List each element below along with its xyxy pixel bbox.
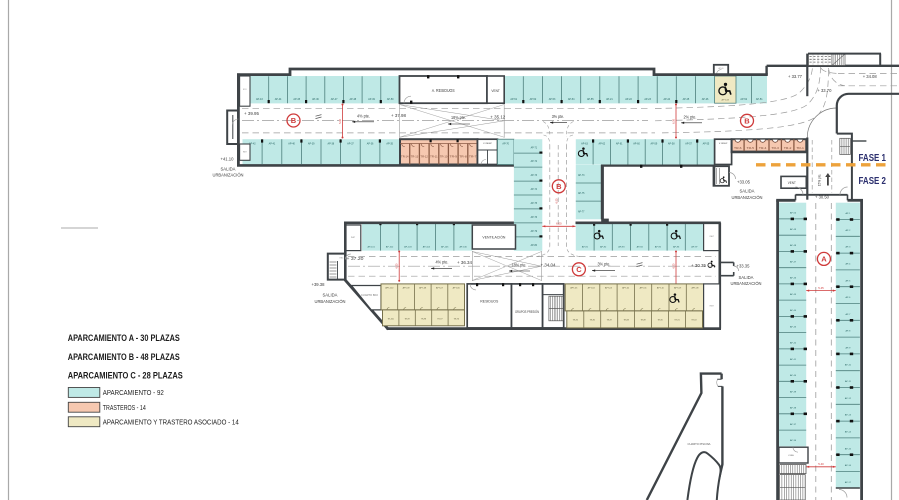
svg-text:AP-37: AP-37 bbox=[790, 423, 797, 426]
svg-text:TR-11: TR-11 bbox=[430, 156, 438, 159]
svg-text:AP-3: AP-3 bbox=[845, 246, 851, 249]
svg-text:3% pte.: 3% pte. bbox=[598, 262, 611, 267]
svg-text:AP-36: AP-36 bbox=[790, 439, 797, 442]
svg-text:TR-13: TR-13 bbox=[411, 156, 419, 159]
svg-text:+33.05: +33.05 bbox=[737, 180, 751, 185]
svg-text:AP-44: AP-44 bbox=[275, 98, 282, 101]
svg-text:AP-103: AP-103 bbox=[404, 246, 412, 249]
svg-text:4% pte.: 4% pte. bbox=[357, 114, 370, 119]
svg-text:TR-92: TR-92 bbox=[691, 320, 696, 322]
svg-text:V. INDEP: V. INDEP bbox=[719, 143, 728, 145]
svg-text:AP-73: AP-73 bbox=[531, 174, 538, 177]
svg-text:TR-9: TR-9 bbox=[450, 156, 458, 159]
svg-text:AP-104: AP-104 bbox=[423, 246, 431, 249]
svg-text:APARCAMIENTO A - 30 PLAZAS: APARCAMIENTO A - 30 PLAZAS bbox=[68, 333, 180, 343]
svg-text:TR-89: TR-89 bbox=[640, 320, 645, 322]
svg-text:AP-4: AP-4 bbox=[845, 263, 851, 266]
svg-text:TR-91: TR-91 bbox=[674, 320, 679, 322]
svg-text:+ 37.20: + 37.20 bbox=[347, 256, 364, 261]
svg-text:AP-73: AP-73 bbox=[578, 174, 585, 177]
svg-text:TRASTEROS - 14: TRASTEROS - 14 bbox=[103, 405, 146, 412]
svg-text:+ 37.98: + 37.98 bbox=[391, 113, 406, 118]
svg-text:TR-100: TR-100 bbox=[388, 318, 394, 320]
svg-text:AP-11: AP-11 bbox=[845, 380, 852, 383]
svg-text:C: C bbox=[576, 265, 582, 274]
svg-text:B: B bbox=[291, 116, 297, 125]
svg-text:APT-33: APT-33 bbox=[722, 99, 730, 102]
svg-text:URBANIZACIÓN: URBANIZACIÓN bbox=[315, 299, 346, 304]
svg-text:AP-60: AP-60 bbox=[633, 142, 640, 145]
svg-text:AP-52: AP-52 bbox=[530, 98, 537, 101]
svg-text:6.00: 6.00 bbox=[396, 263, 399, 268]
svg-text:AP-61: AP-61 bbox=[616, 142, 623, 145]
svg-text:AP-41: AP-41 bbox=[269, 142, 276, 145]
svg-text:APT-09: APT-09 bbox=[403, 287, 411, 290]
svg-text:AP-97: AP-97 bbox=[691, 246, 698, 249]
svg-text:TR-5: TR-5 bbox=[747, 147, 755, 150]
svg-text:AP-46: AP-46 bbox=[790, 277, 797, 280]
svg-text:AP-22: AP-22 bbox=[625, 98, 632, 101]
svg-text:URBANIZACIÓN: URBANIZACIÓN bbox=[732, 195, 763, 200]
svg-text:URBANIZACIÓN: URBANIZACIÓN bbox=[731, 281, 762, 286]
svg-text:APT-04: APT-04 bbox=[588, 287, 596, 290]
svg-text:AP-105: AP-105 bbox=[441, 246, 449, 249]
svg-text:+ 36.34: + 36.34 bbox=[457, 260, 472, 265]
svg-text:+33.35: +33.35 bbox=[737, 263, 751, 268]
svg-text:VENT: VENT bbox=[491, 89, 500, 93]
svg-text:SALIDA: SALIDA bbox=[739, 275, 754, 280]
svg-text:AP-16: AP-16 bbox=[845, 464, 852, 467]
svg-text:AP-77: AP-77 bbox=[578, 210, 585, 213]
svg-text:APARCAMIENTO - 92: APARCAMIENTO - 92 bbox=[103, 390, 164, 397]
svg-text:AP-7: AP-7 bbox=[845, 313, 851, 316]
svg-text:APT-03: APT-03 bbox=[605, 287, 613, 290]
svg-text:A: A bbox=[821, 255, 827, 264]
svg-text:AP-54: AP-54 bbox=[568, 98, 575, 101]
svg-text:AP-72: AP-72 bbox=[531, 160, 538, 163]
svg-text:AP-35: AP-35 bbox=[386, 142, 393, 145]
svg-text:AP-37: AP-37 bbox=[347, 142, 354, 145]
svg-text:TR-14: TR-14 bbox=[401, 156, 409, 159]
svg-text:APARCAMIENTO B - 48 PLAZAS: APARCAMIENTO B - 48 PLAZAS bbox=[68, 352, 180, 362]
svg-text:AP-47: AP-47 bbox=[331, 98, 338, 101]
svg-text:+ 34.04: + 34.04 bbox=[541, 262, 556, 267]
svg-text:APARCAMIENTO Y TRASTERO ASOCIA: APARCAMIENTO Y TRASTERO ASOCIADO - 14 bbox=[103, 420, 239, 427]
svg-text:AP-91: AP-91 bbox=[582, 246, 589, 249]
svg-text:AP-48: AP-48 bbox=[790, 244, 797, 247]
svg-text:VENTILACIÓN: VENTILACIÓN bbox=[482, 235, 505, 240]
svg-text:AP-36: AP-36 bbox=[367, 142, 374, 145]
svg-text:APT-10: APT-10 bbox=[657, 287, 665, 290]
svg-text:GRUPOS PRESIÓN: GRUPOS PRESIÓN bbox=[515, 309, 540, 314]
svg-text:AP-40: AP-40 bbox=[288, 142, 295, 145]
svg-text:AP-74: AP-74 bbox=[531, 188, 538, 191]
svg-text:AP-49: AP-49 bbox=[368, 98, 375, 101]
svg-text:AP-47: AP-47 bbox=[790, 260, 797, 263]
svg-text:5.40: 5.40 bbox=[818, 462, 824, 466]
svg-text:AP-58: AP-58 bbox=[668, 142, 675, 145]
svg-text:AP-24: AP-24 bbox=[663, 98, 670, 101]
svg-text:+ 39.95: + 39.95 bbox=[244, 111, 259, 116]
svg-text:2% pte.: 2% pte. bbox=[684, 115, 697, 120]
svg-text:AP-51: AP-51 bbox=[756, 98, 763, 101]
svg-text:6.00: 6.00 bbox=[555, 198, 558, 203]
svg-text:AP-52: AP-52 bbox=[740, 98, 747, 101]
svg-text:AP-38: AP-38 bbox=[327, 142, 334, 145]
svg-text:TR-86: TR-86 bbox=[590, 320, 595, 322]
svg-text:FASE 2: FASE 2 bbox=[859, 176, 887, 187]
svg-text:V.MAN: V.MAN bbox=[788, 454, 794, 457]
svg-text:SALIDA: SALIDA bbox=[221, 166, 236, 171]
svg-text:6.00: 6.00 bbox=[673, 119, 676, 124]
svg-text:APT-05: APT-05 bbox=[570, 287, 578, 290]
svg-text:TR-2: TR-2 bbox=[784, 147, 792, 150]
svg-text:APT-02: APT-02 bbox=[622, 287, 630, 290]
svg-text:+39.38: +39.38 bbox=[312, 282, 326, 287]
svg-text:AP-50: AP-50 bbox=[790, 212, 797, 215]
svg-text:AP-23: AP-23 bbox=[644, 98, 651, 101]
svg-text:TR-8: TR-8 bbox=[459, 156, 467, 159]
svg-text:AP-50: AP-50 bbox=[387, 98, 394, 101]
svg-text:APT-07: APT-07 bbox=[436, 287, 444, 290]
svg-text:SALIDA: SALIDA bbox=[323, 293, 338, 298]
svg-text:TR-12: TR-12 bbox=[420, 156, 428, 159]
svg-text:AP-38: AP-38 bbox=[790, 407, 797, 410]
svg-text:APT-01: APT-01 bbox=[640, 287, 648, 290]
svg-text:+41.10: +41.10 bbox=[221, 156, 235, 161]
svg-text:AP-46: AP-46 bbox=[312, 98, 319, 101]
svg-text:AP-12: AP-12 bbox=[845, 397, 852, 400]
svg-text:AP-8: AP-8 bbox=[845, 330, 851, 333]
svg-text:AP-43: AP-43 bbox=[256, 98, 263, 101]
svg-text:AP-14: AP-14 bbox=[845, 431, 852, 434]
svg-text:AP-17: AP-17 bbox=[845, 481, 852, 484]
svg-text:AP-15: AP-15 bbox=[845, 447, 852, 450]
svg-text:AP-55: AP-55 bbox=[703, 142, 710, 145]
svg-text:AP-42: AP-42 bbox=[790, 342, 797, 345]
svg-text:AP-101: AP-101 bbox=[368, 246, 376, 249]
svg-text:TR-1: TR-1 bbox=[796, 147, 804, 150]
svg-text:AP-21: AP-21 bbox=[606, 98, 613, 101]
svg-text:TR-88: TR-88 bbox=[624, 320, 629, 322]
svg-text:AP-49: AP-49 bbox=[790, 228, 797, 231]
svg-text:6.00: 6.00 bbox=[673, 263, 676, 268]
svg-text:V. INDEP: V. INDEP bbox=[483, 143, 492, 145]
svg-text:AP-106: AP-106 bbox=[459, 246, 467, 249]
svg-text:3% pte.: 3% pte. bbox=[552, 114, 565, 119]
svg-text:FASE 1: FASE 1 bbox=[859, 153, 887, 164]
svg-text:4% pte.: 4% pte. bbox=[436, 260, 449, 265]
svg-text:AP-9: AP-9 bbox=[845, 347, 851, 350]
svg-text:AP-41: AP-41 bbox=[790, 358, 797, 361]
svg-text:AP-1: AP-1 bbox=[845, 212, 851, 215]
svg-text:AP-43: AP-43 bbox=[790, 325, 797, 328]
svg-text:AP-2: AP-2 bbox=[845, 229, 851, 232]
svg-text:APT-09: APT-09 bbox=[674, 287, 682, 290]
svg-text:B: B bbox=[744, 116, 750, 125]
svg-text:AP-45: AP-45 bbox=[293, 98, 300, 101]
svg-text:+ 34.08: + 34.08 bbox=[863, 74, 878, 79]
svg-text:AP-76: AP-76 bbox=[531, 216, 538, 219]
svg-text:AP-79: AP-79 bbox=[531, 230, 538, 233]
svg-text:SALIDA: SALIDA bbox=[740, 189, 755, 194]
svg-text:AP-10: AP-10 bbox=[845, 363, 852, 366]
svg-text:AP-13: AP-13 bbox=[845, 414, 852, 417]
svg-text:APARCAMIENTO C - 28 PLAZAS: APARCAMIENTO C - 28 PLAZAS bbox=[68, 371, 183, 381]
svg-text:5.45: 5.45 bbox=[818, 286, 824, 290]
svg-text:URBANIZACIÓN: URBANIZACIÓN bbox=[213, 173, 244, 178]
svg-text:AP-63: AP-63 bbox=[581, 142, 588, 145]
svg-text:TR-85: TR-85 bbox=[573, 320, 578, 322]
svg-text:TR-98: TR-98 bbox=[421, 318, 426, 320]
svg-text:AP-70: AP-70 bbox=[502, 142, 509, 145]
svg-text:+ 33.70: + 33.70 bbox=[817, 88, 832, 93]
svg-text:AP-55: AP-55 bbox=[587, 98, 594, 101]
svg-text:TR-97: TR-97 bbox=[437, 318, 442, 320]
svg-text:AP-39: AP-39 bbox=[790, 390, 797, 393]
svg-text:AP-80: AP-80 bbox=[531, 244, 538, 247]
svg-text:AP-44: AP-44 bbox=[790, 309, 797, 312]
svg-text:TR-90: TR-90 bbox=[657, 320, 662, 322]
svg-text:CUARTO PISCINA: CUARTO PISCINA bbox=[688, 442, 711, 446]
svg-text:AP-26: AP-26 bbox=[702, 98, 709, 101]
svg-text:AP-75: AP-75 bbox=[531, 202, 538, 205]
svg-text:AP-93: AP-93 bbox=[618, 246, 625, 249]
svg-text:AP-53: AP-53 bbox=[549, 98, 556, 101]
svg-text:A. RESIDUOS: A. RESIDUOS bbox=[432, 88, 455, 93]
svg-text:AP-25: AP-25 bbox=[683, 98, 690, 101]
svg-text:+ 30.35: + 30.35 bbox=[691, 263, 706, 268]
svg-text:5.00: 5.00 bbox=[339, 119, 342, 124]
svg-text:APT-06: APT-06 bbox=[453, 287, 461, 290]
svg-text:APT-08: APT-08 bbox=[691, 287, 699, 290]
svg-text:TR-87: TR-87 bbox=[607, 320, 612, 322]
svg-text:AP-48: AP-48 bbox=[349, 98, 356, 101]
svg-text:AP-62: AP-62 bbox=[598, 142, 605, 145]
svg-text:AP-09: AP-09 bbox=[719, 67, 724, 70]
svg-text:18% pte.: 18% pte. bbox=[451, 115, 466, 120]
svg-text:TR-99: TR-99 bbox=[404, 318, 409, 320]
svg-text:AP-94: AP-94 bbox=[637, 246, 644, 249]
svg-text:VENT: VENT bbox=[788, 181, 796, 185]
svg-text:AP-45: AP-45 bbox=[790, 293, 797, 296]
svg-text:AP-5: AP-5 bbox=[845, 279, 851, 282]
svg-text:APT-08: APT-08 bbox=[419, 287, 427, 290]
svg-text:TR-6: TR-6 bbox=[734, 147, 742, 150]
svg-text:AP-71: AP-71 bbox=[531, 146, 538, 149]
svg-text:+ 33.77: + 33.77 bbox=[788, 74, 803, 79]
svg-text:TR-96: TR-96 bbox=[454, 318, 459, 320]
svg-text:B: B bbox=[556, 182, 562, 191]
svg-text:AP-51: AP-51 bbox=[510, 98, 517, 101]
svg-text:TR-4: TR-4 bbox=[759, 147, 767, 150]
svg-text:AP-6: AP-6 bbox=[845, 296, 851, 299]
svg-text:AP-102: AP-102 bbox=[386, 246, 394, 249]
svg-text:6.00: 6.00 bbox=[556, 222, 562, 226]
svg-text:+ 35.12: + 35.12 bbox=[490, 115, 505, 120]
svg-text:15% pte.: 15% pte. bbox=[818, 174, 822, 187]
svg-text:RESIDUOS: RESIDUOS bbox=[480, 299, 498, 304]
svg-text:AP-39: AP-39 bbox=[308, 142, 315, 145]
svg-text:AP-75: AP-75 bbox=[578, 192, 585, 195]
svg-text:AP-92: AP-92 bbox=[600, 246, 607, 249]
svg-text:AP-96: AP-96 bbox=[673, 246, 680, 249]
svg-text:AP-40: AP-40 bbox=[790, 374, 797, 377]
svg-text:AP-59: AP-59 bbox=[651, 142, 658, 145]
svg-text:CUARTO BICI: CUARTO BICI bbox=[361, 294, 378, 297]
svg-text:TR-3: TR-3 bbox=[771, 147, 779, 150]
svg-text:18% pte.: 18% pte. bbox=[512, 262, 527, 267]
svg-text:TR-10: TR-10 bbox=[440, 156, 448, 159]
svg-text:AP-95: AP-95 bbox=[655, 246, 662, 249]
svg-text:APT-110: APT-110 bbox=[385, 287, 394, 290]
svg-text:AP-57: AP-57 bbox=[685, 142, 692, 145]
svg-text:TR-7: TR-7 bbox=[469, 156, 477, 159]
svg-text:INST: INST bbox=[243, 152, 247, 154]
